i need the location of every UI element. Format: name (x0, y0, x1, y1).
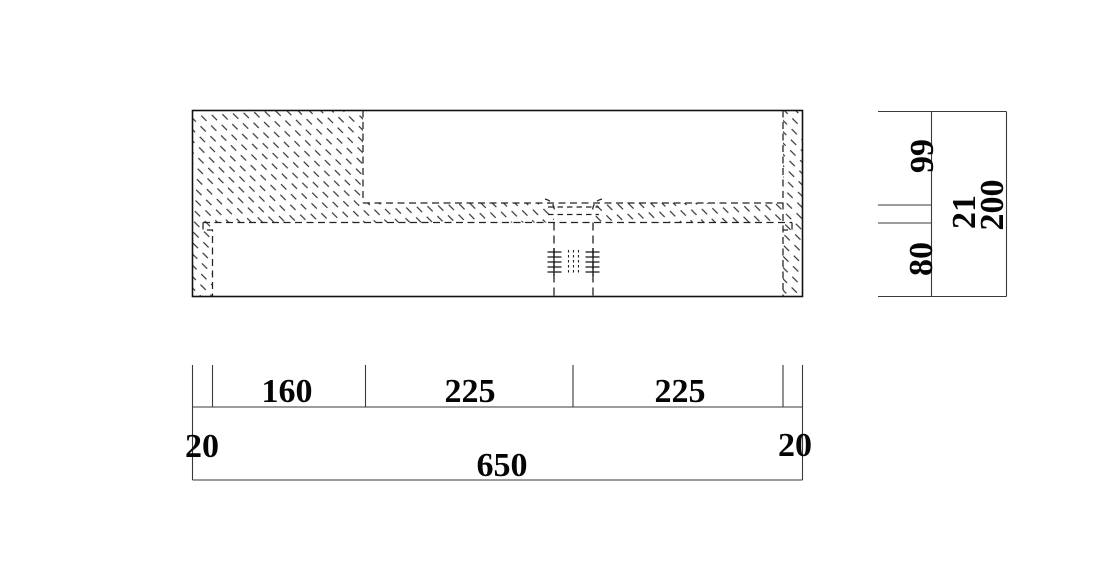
hatch-band-left (363, 203, 554, 223)
hatch-band-right (593, 203, 783, 223)
dim-label-upper-height: 99 (904, 139, 941, 173)
dim-label-edge-left: 20 (185, 428, 219, 465)
dim-label-edge-right: 20 (778, 427, 812, 464)
thread-core-lines (569, 250, 579, 275)
dim-label-span-right: 225 (655, 373, 706, 410)
width-dimension-chain: 160 225 225 20 20 650 (185, 365, 812, 484)
hatch-top-left-block (193, 111, 364, 223)
dim-label-block-width: 160 (262, 373, 313, 410)
dim-label-total-height: 200 (974, 180, 1011, 231)
dim-label-total-width: 650 (477, 447, 528, 484)
hatch-left-strip (193, 223, 213, 297)
drawing-page: 99 80 21 200 160 225 225 20 20 650 (0, 0, 1112, 568)
height-dimension-view: 99 80 21 200 (878, 112, 1011, 297)
hatch-right-strip (783, 111, 803, 297)
section-view (193, 111, 803, 297)
dim-label-lower-height: 80 (903, 242, 940, 276)
dim-label-span-left: 225 (445, 373, 496, 410)
technical-drawing: 99 80 21 200 160 225 225 20 20 650 (0, 0, 1112, 568)
